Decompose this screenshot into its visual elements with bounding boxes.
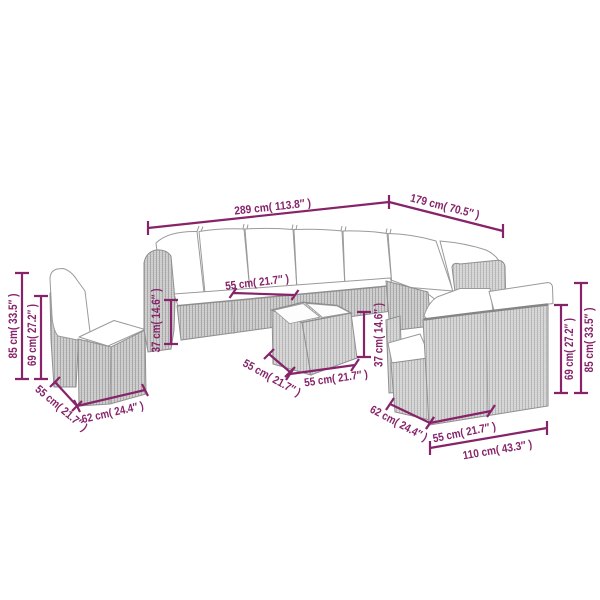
svg-text:85 cm( 33.5″ ): 85 cm( 33.5″ ) <box>584 307 596 372</box>
svg-text:37 cm( 14.6″ ): 37 cm( 14.6″ ) <box>374 303 386 367</box>
svg-text:37 cm( 14.6″ ): 37 cm( 14.6″ ) <box>151 288 163 352</box>
svg-text:69 cm( 27.2″ ): 69 cm( 27.2″ ) <box>27 304 39 366</box>
svg-text:85 cm( 33.5″ ): 85 cm( 33.5″ ) <box>8 293 20 358</box>
svg-text:69 cm( 27.2″ ): 69 cm( 27.2″ ) <box>564 318 576 380</box>
